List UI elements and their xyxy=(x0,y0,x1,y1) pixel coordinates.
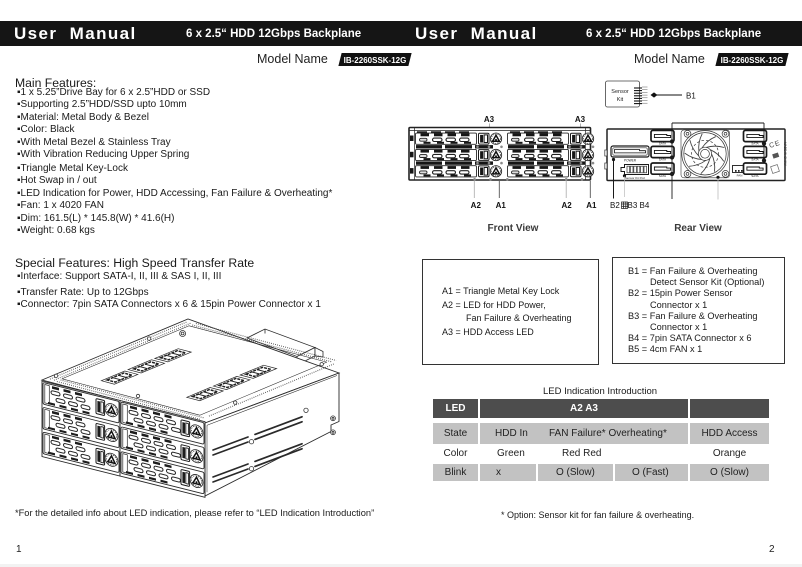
svg-text:B3: B3 xyxy=(628,201,638,210)
svg-text:A1: A1 xyxy=(586,201,597,210)
svg-text:B2: B2 xyxy=(610,201,620,210)
svg-text:SATA: SATA xyxy=(659,158,666,162)
svg-text:SATA: SATA xyxy=(659,142,666,146)
svg-text:FAN: FAN xyxy=(737,174,743,178)
svg-text:SATA: SATA xyxy=(659,174,666,178)
svg-text:A2: A2 xyxy=(471,201,482,210)
svg-text:Sensor: Sensor xyxy=(611,89,629,95)
svg-text:POWER: POWER xyxy=(624,159,637,163)
svg-text:SATA: SATA xyxy=(751,158,758,162)
svg-text:A3: A3 xyxy=(575,115,586,124)
svg-text:A3: A3 xyxy=(484,115,495,124)
svg-text:B1: B1 xyxy=(686,92,696,101)
svg-text:Kit: Kit xyxy=(617,97,624,103)
svg-text:MADE IN CHINA: MADE IN CHINA xyxy=(783,142,787,167)
svg-text:Sensor Kit Port: Sensor Kit Port xyxy=(625,176,645,180)
svg-text:B4: B4 xyxy=(640,201,650,210)
svg-text:A2: A2 xyxy=(561,201,572,210)
svg-text:SATA: SATA xyxy=(751,142,758,146)
svg-text:SATA: SATA xyxy=(751,174,758,178)
svg-text:A1: A1 xyxy=(496,201,507,210)
